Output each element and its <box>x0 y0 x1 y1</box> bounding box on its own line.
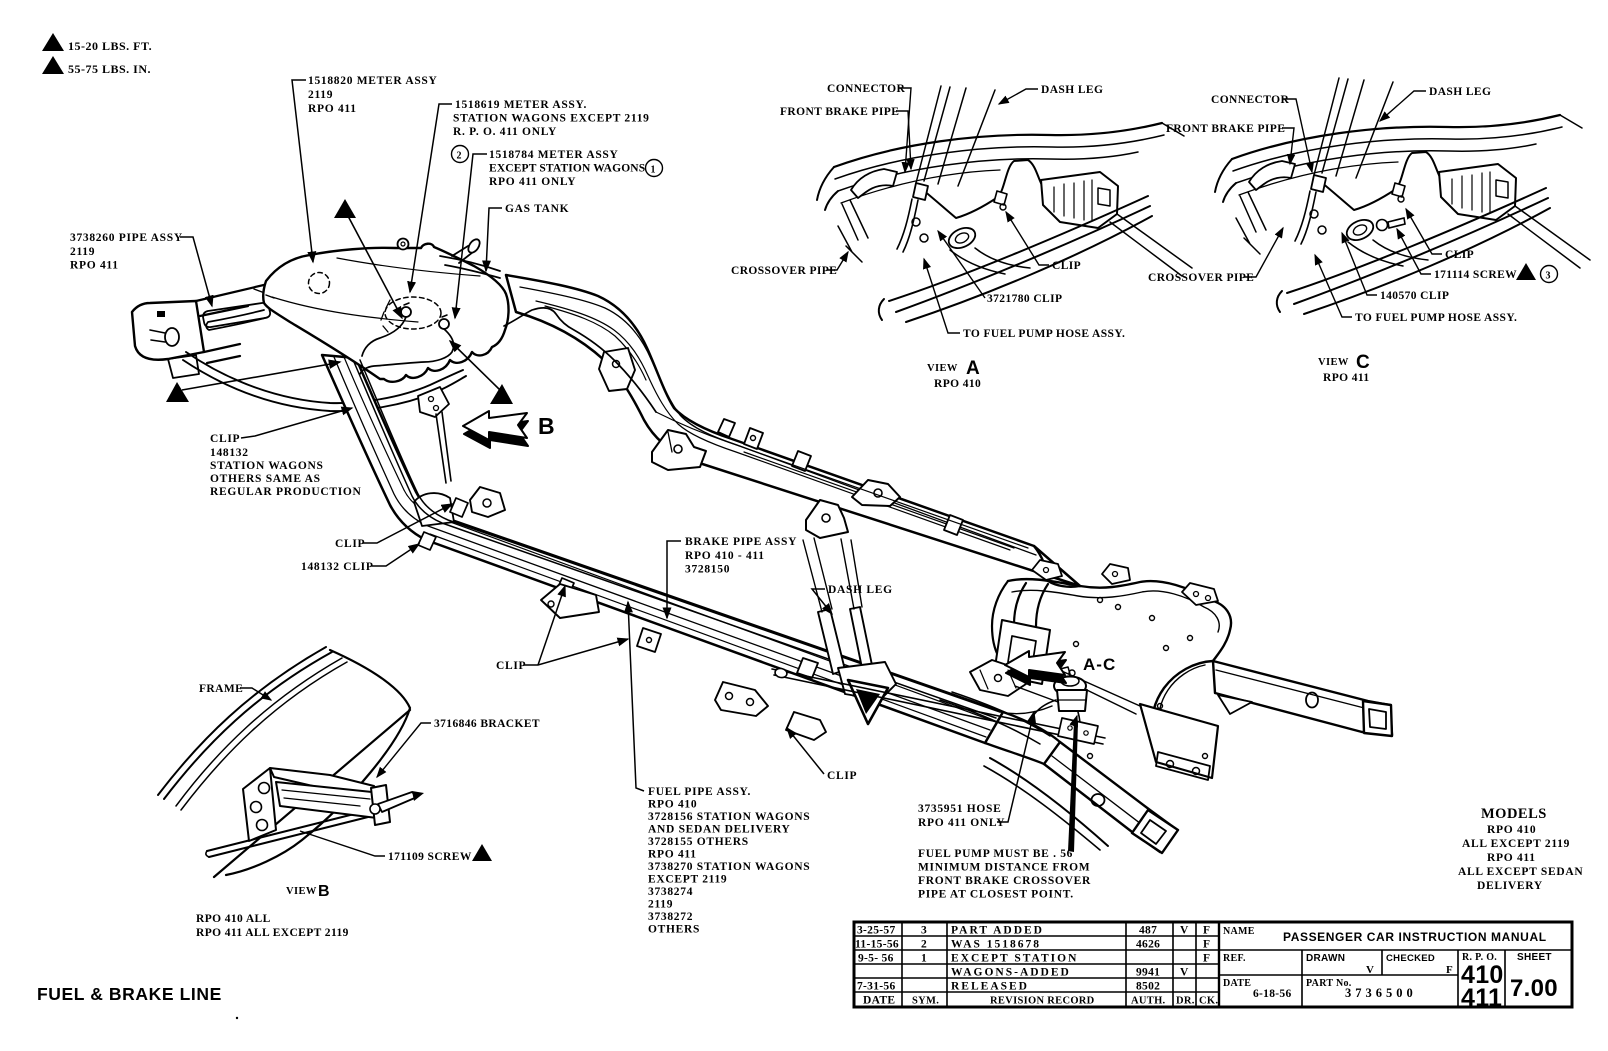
svg-text:B: B <box>318 883 330 900</box>
svg-text:CROSSOVER PIPE: CROSSOVER PIPE <box>731 265 837 277</box>
svg-text:VIEW: VIEW <box>927 363 958 374</box>
svg-text:3738260 PIPE ASSY: 3738260 PIPE ASSY <box>70 232 183 244</box>
svg-text:RPO 411: RPO 411 <box>308 103 357 115</box>
svg-text:ALL EXCEPT 2119: ALL EXCEPT 2119 <box>1462 838 1570 850</box>
svg-text:RPO 410: RPO 410 <box>934 378 981 390</box>
svg-text:4626: 4626 <box>1136 939 1160 951</box>
svg-text:SYM.: SYM. <box>912 996 939 1007</box>
svg-text:FUEL & BRAKE LINE: FUEL & BRAKE LINE <box>37 984 222 1004</box>
svg-text:1518820 METER ASSY: 1518820 METER ASSY <box>308 75 438 87</box>
svg-text:WAS 1518678: WAS 1518678 <box>951 939 1041 951</box>
svg-text:3728156 STATION WAGONS: 3728156 STATION WAGONS <box>648 811 810 823</box>
svg-text:EXCEPT STATION: EXCEPT STATION <box>951 953 1078 965</box>
svg-text:CK.: CK. <box>1199 996 1218 1007</box>
svg-text:15-20 LBS. FT.: 15-20 LBS. FT. <box>68 39 152 53</box>
svg-text:RPO 411: RPO 411 <box>70 260 119 272</box>
svg-text:R. P. O. 411 ONLY: R. P. O. 411 ONLY <box>453 126 557 138</box>
svg-text:3735951 HOSE: 3735951 HOSE <box>918 803 1001 815</box>
svg-text:3736500: 3736500 <box>1345 986 1417 1000</box>
svg-text:REVISION RECORD: REVISION RECORD <box>990 996 1095 1007</box>
svg-text:RPO 410 - 411: RPO 410 - 411 <box>685 550 765 562</box>
svg-text:DATE: DATE <box>863 995 895 1007</box>
svg-text:1: 1 <box>651 165 657 176</box>
svg-text:3-25-57: 3-25-57 <box>857 925 896 937</box>
svg-text:11-15-56: 11-15-56 <box>855 939 899 951</box>
svg-text:FRONT BRAKE PIPE: FRONT BRAKE PIPE <box>1166 123 1285 135</box>
svg-text:CONNECTOR: CONNECTOR <box>1211 94 1289 106</box>
svg-text:MODELS: MODELS <box>1481 806 1547 822</box>
svg-text:3738274: 3738274 <box>648 886 693 898</box>
svg-text:CLIP: CLIP <box>335 538 365 550</box>
svg-text:REF.: REF. <box>1223 953 1246 964</box>
svg-text:VIEW: VIEW <box>286 886 317 897</box>
svg-text:7.00: 7.00 <box>1510 975 1558 1002</box>
svg-text:RPO 410: RPO 410 <box>1487 824 1536 836</box>
svg-text:2: 2 <box>921 939 927 951</box>
svg-text:REGULAR PRODUCTION: REGULAR PRODUCTION <box>210 486 362 498</box>
svg-text:CLIP: CLIP <box>210 433 240 445</box>
svg-text:FUEL PUMP MUST BE . 56: FUEL PUMP MUST BE . 56 <box>918 848 1073 860</box>
svg-text:V: V <box>1180 925 1189 937</box>
svg-text:411: 411 <box>1461 984 1502 1012</box>
svg-text:CROSSOVER PIPE: CROSSOVER PIPE <box>1148 272 1254 284</box>
svg-text:FRAME: FRAME <box>199 683 243 695</box>
svg-text:SHEET: SHEET <box>1517 952 1552 963</box>
svg-text:MINIMUM DISTANCE FROM: MINIMUM DISTANCE FROM <box>918 862 1090 874</box>
svg-text:EXCEPT 2119: EXCEPT 2119 <box>648 874 727 886</box>
svg-text:1518619 METER ASSY.: 1518619 METER ASSY. <box>455 99 587 111</box>
svg-text:RPO 411: RPO 411 <box>1487 852 1536 864</box>
svg-text:7-31-56: 7-31-56 <box>857 981 896 993</box>
svg-text:140570 CLIP: 140570 CLIP <box>1380 290 1449 302</box>
svg-text:TO FUEL PUMP HOSE ASSY.: TO FUEL PUMP HOSE ASSY. <box>963 328 1125 340</box>
svg-text:CLIP: CLIP <box>1445 249 1474 261</box>
svg-text:OTHERS: OTHERS <box>648 924 700 936</box>
svg-text:RPO 410: RPO 410 <box>648 799 697 811</box>
svg-text:RPO 411 ALL EXCEPT 2119: RPO 411 ALL EXCEPT 2119 <box>196 927 349 939</box>
svg-text:3721780 CLIP: 3721780 CLIP <box>987 293 1062 305</box>
svg-text:DR.: DR. <box>1176 996 1195 1007</box>
svg-text:CLIP: CLIP <box>496 660 526 672</box>
svg-text:3728150: 3728150 <box>685 564 730 576</box>
svg-text:V: V <box>1366 964 1374 976</box>
svg-text:PASSENGER CAR INSTRUCTION MANU: PASSENGER CAR INSTRUCTION MANUAL <box>1283 930 1547 944</box>
svg-text:A: A <box>966 358 980 379</box>
svg-text:BRAKE PIPE ASSY: BRAKE PIPE ASSY <box>685 536 797 548</box>
svg-text:1518784 METER ASSY: 1518784 METER ASSY <box>489 149 619 161</box>
svg-text:DATE: DATE <box>1223 978 1251 989</box>
svg-text:DRAWN: DRAWN <box>1306 953 1345 964</box>
svg-text:OTHERS SAME AS: OTHERS SAME AS <box>210 473 321 485</box>
svg-text:3: 3 <box>921 925 927 937</box>
svg-text:RPO 411 ONLY: RPO 411 ONLY <box>489 176 576 188</box>
svg-text:B: B <box>538 413 555 439</box>
svg-text:2119: 2119 <box>70 246 95 258</box>
svg-text:6-18-56: 6-18-56 <box>1253 988 1292 1000</box>
svg-text:2119: 2119 <box>308 89 333 101</box>
svg-text:3716846 BRACKET: 3716846 BRACKET <box>434 718 540 730</box>
svg-text:VIEW: VIEW <box>1318 357 1349 368</box>
svg-text:FRONT BRAKE CROSSOVER: FRONT BRAKE CROSSOVER <box>918 875 1091 887</box>
svg-text:9-5- 56: 9-5- 56 <box>858 953 894 965</box>
svg-text:WAGONS-ADDED: WAGONS-ADDED <box>951 967 1071 979</box>
svg-text:RPO 411 ONLY: RPO 411 ONLY <box>918 817 1005 829</box>
svg-text:AND SEDAN DELIVERY: AND SEDAN DELIVERY <box>648 824 791 836</box>
svg-text:CLIP: CLIP <box>1052 260 1081 272</box>
svg-text:FUEL PIPE ASSY.: FUEL PIPE ASSY. <box>648 786 751 798</box>
svg-text:RPO 411: RPO 411 <box>1323 372 1370 384</box>
svg-text:GAS TANK: GAS TANK <box>505 203 569 215</box>
svg-text:DASH LEG: DASH LEG <box>1429 86 1491 98</box>
svg-text:148132: 148132 <box>210 447 249 459</box>
svg-text:3: 3 <box>1546 271 1551 282</box>
svg-text:PART ADDED: PART ADDED <box>951 925 1044 937</box>
svg-text:V: V <box>1180 967 1189 979</box>
svg-text:FRONT BRAKE PIPE: FRONT BRAKE PIPE <box>780 106 899 118</box>
svg-text:RELEASED: RELEASED <box>951 981 1029 993</box>
svg-text:F: F <box>1203 939 1210 951</box>
svg-text:EXCEPT STATION WAGONS: EXCEPT STATION WAGONS <box>489 163 645 175</box>
svg-text:STATION WAGONS EXCEPT 2119: STATION WAGONS EXCEPT 2119 <box>453 113 650 125</box>
svg-text:RPO 411: RPO 411 <box>648 849 697 861</box>
svg-text:AUTH.: AUTH. <box>1131 996 1166 1007</box>
svg-text:PIPE AT CLOSEST POINT.: PIPE AT CLOSEST POINT. <box>918 889 1074 901</box>
svg-text:2: 2 <box>457 151 463 162</box>
svg-text:NAME: NAME <box>1223 926 1255 937</box>
svg-text:171114 SCREW: 171114 SCREW <box>1434 269 1517 281</box>
svg-text:CLIP: CLIP <box>827 770 857 782</box>
svg-text:STATION WAGONS: STATION WAGONS <box>210 460 324 472</box>
svg-text:1: 1 <box>921 953 927 965</box>
svg-text:F: F <box>1203 925 1210 937</box>
svg-text:DASH LEG: DASH LEG <box>1041 84 1103 96</box>
svg-text:8502: 8502 <box>1136 981 1160 993</box>
svg-text:3738270 STATION WAGONS: 3738270 STATION WAGONS <box>648 861 810 873</box>
svg-text:3738272: 3738272 <box>648 911 693 923</box>
svg-text:C: C <box>1356 352 1370 373</box>
svg-text:F: F <box>1446 964 1453 976</box>
svg-text:ALL EXCEPT SEDAN: ALL EXCEPT SEDAN <box>1458 866 1583 878</box>
svg-text:9941: 9941 <box>1136 967 1160 979</box>
svg-text:487: 487 <box>1139 925 1157 937</box>
svg-text:148132 CLIP: 148132 CLIP <box>301 561 374 573</box>
svg-text:A-C: A-C <box>1083 655 1116 674</box>
svg-text:55-75 LBS. IN.: 55-75 LBS. IN. <box>68 62 151 76</box>
svg-text:2119: 2119 <box>648 899 673 911</box>
svg-text:171109 SCREW: 171109 SCREW <box>388 851 472 863</box>
svg-text:CONNECTOR: CONNECTOR <box>827 83 905 95</box>
svg-text:RPO 410 ALL: RPO 410 ALL <box>196 913 271 925</box>
svg-text:3728155 OTHERS: 3728155 OTHERS <box>648 836 749 848</box>
svg-text:CHECKED: CHECKED <box>1386 953 1435 964</box>
svg-text:DELIVERY: DELIVERY <box>1477 880 1543 892</box>
svg-text:TO FUEL PUMP HOSE ASSY.: TO FUEL PUMP HOSE ASSY. <box>1355 312 1517 324</box>
svg-text:DASH LEG: DASH LEG <box>828 584 893 596</box>
svg-text:F: F <box>1203 953 1210 965</box>
